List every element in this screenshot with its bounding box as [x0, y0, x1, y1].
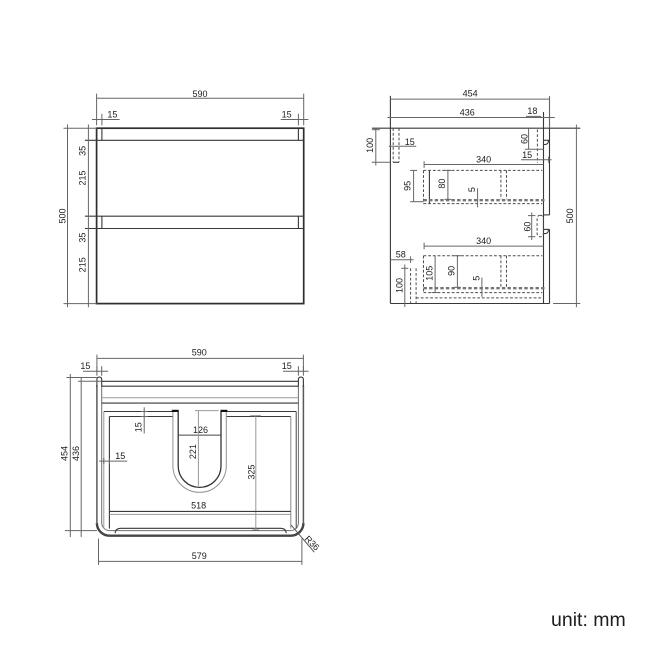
svg-text:15: 15 — [405, 137, 415, 147]
svg-text:95: 95 — [403, 181, 413, 191]
svg-text:340: 340 — [476, 236, 491, 246]
svg-text:436: 436 — [460, 108, 475, 118]
svg-text:15: 15 — [522, 150, 532, 160]
svg-text:221: 221 — [188, 444, 198, 459]
svg-text:15: 15 — [107, 109, 117, 119]
svg-text:454: 454 — [60, 446, 70, 461]
svg-text:579: 579 — [192, 551, 207, 561]
svg-text:100: 100 — [365, 138, 375, 153]
svg-text:215: 215 — [78, 257, 88, 272]
svg-text:58: 58 — [396, 250, 406, 260]
svg-text:80: 80 — [437, 179, 447, 189]
svg-text:590: 590 — [192, 89, 207, 99]
svg-text:518: 518 — [191, 501, 206, 511]
svg-text:5: 5 — [467, 187, 477, 192]
svg-text:15: 15 — [282, 109, 292, 119]
svg-text:100: 100 — [394, 278, 404, 293]
svg-text:15: 15 — [115, 451, 125, 461]
svg-text:340: 340 — [476, 154, 491, 164]
svg-text:18: 18 — [527, 106, 537, 116]
svg-text:90: 90 — [446, 266, 456, 276]
svg-text:5: 5 — [472, 276, 482, 281]
svg-text:500: 500 — [565, 208, 575, 223]
svg-text:454: 454 — [463, 89, 478, 99]
svg-text:325: 325 — [246, 465, 256, 480]
svg-text:215: 215 — [78, 170, 88, 185]
svg-text:500: 500 — [57, 208, 67, 223]
svg-text:unit: mm: unit: mm — [551, 609, 626, 631]
svg-text:35: 35 — [78, 233, 88, 243]
svg-text:105: 105 — [424, 266, 434, 281]
svg-text:436: 436 — [71, 446, 81, 461]
svg-text:15: 15 — [282, 361, 292, 371]
svg-text:590: 590 — [192, 347, 207, 357]
svg-text:60: 60 — [522, 222, 532, 232]
svg-text:15: 15 — [133, 422, 143, 432]
svg-text:15: 15 — [80, 361, 90, 371]
svg-text:35: 35 — [78, 146, 88, 156]
svg-text:60: 60 — [520, 134, 530, 144]
svg-text:126: 126 — [193, 425, 208, 435]
